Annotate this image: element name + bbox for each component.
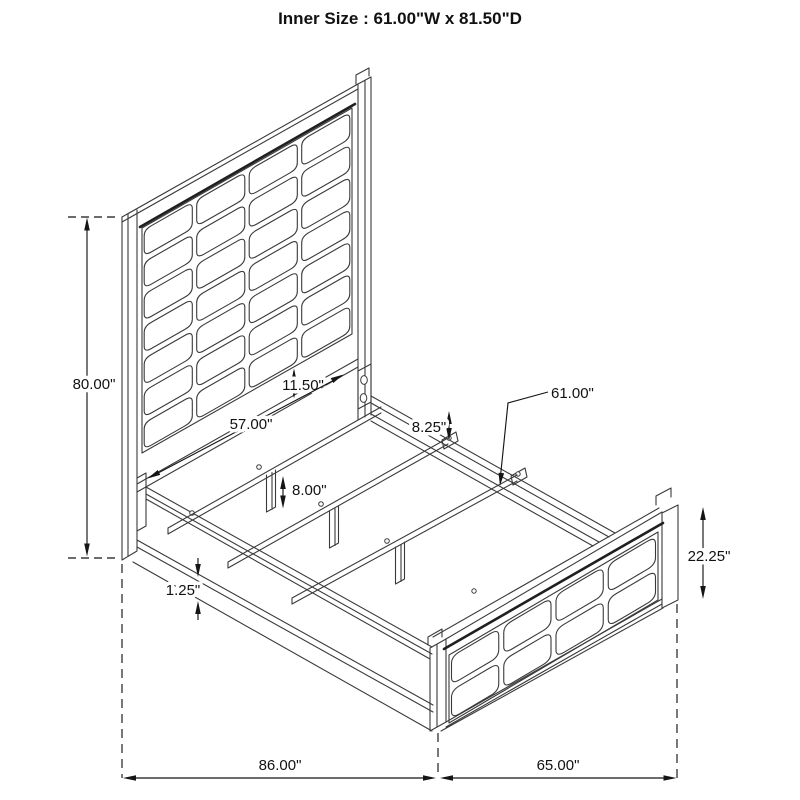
upholstery-cell [302,276,350,325]
dim-headboard-height: 80.00" [68,217,120,558]
footboard-far-post-tab [656,488,671,505]
side-rail-left [133,473,433,731]
headboard-piping [140,104,355,227]
upholstery-cell [249,306,297,355]
upholstery-cell [302,244,350,293]
upholstery-cell [144,366,192,415]
footboard-base [441,599,663,731]
upholstery-cell [197,304,245,353]
dim-rail-to-slat: 8.25" [412,411,452,441]
upholstery-cell [249,145,297,194]
diagram-title: Inner Size : 61.00"W x 81.50"D [278,9,522,28]
headboard-panel-outline [142,108,352,453]
dim-footboard-height: 22.25" [688,507,731,599]
upholstery-cell [302,308,350,357]
arrowhead [84,544,90,557]
deck-screw [472,589,476,593]
slat-screw-3 [385,539,390,544]
upholstery-cell [144,237,192,286]
footboard-far-post [662,505,678,608]
platform-side-right [371,414,599,546]
headboard-frame [122,68,371,560]
footboard [428,488,678,731]
dim-rail-lip-label: 1.25" [166,582,201,599]
dim-rail-lip: 1.25" [166,558,201,620]
slat-1 [168,407,381,534]
upholstery-cell [197,239,245,288]
dim-overall-width-label: 65.00" [537,757,580,774]
plate-hole-top [361,376,368,385]
upholstery-cell [302,179,350,228]
upholstery-cell [249,242,297,291]
slat-legs [267,470,405,584]
headboard-left-post [122,210,137,560]
upholstery-cell [144,301,192,350]
dim-overall-length-label: 86.00" [259,757,302,774]
dim-overall-width: 65.00" [440,757,677,781]
headboard-right-post [358,77,371,420]
upholstery-cell [249,177,297,226]
bed-drawing [122,68,678,731]
dim-headboard-clearance: 11.50" [282,369,324,399]
upholstery-cell [144,269,192,318]
upholstery-cell [197,207,245,256]
dim-headboard-clearance-label: 11.50" [282,377,324,394]
arrowhead [148,470,161,479]
dim-slat-span: 57.00" [148,375,344,479]
diagram-svg: 80.00" 11.50" 57.00" 8.25" 61.00" [0,0,800,800]
slat-screw-2 [319,502,324,507]
slat-leg-3 [396,542,405,584]
dim-slat-span-label: 57.00" [230,416,273,433]
upholstery-cell [197,336,245,385]
upholstery-cell [197,271,245,320]
upper-rail-left [146,487,432,659]
slat-leg-2 [330,506,339,548]
slat-2 [228,438,448,568]
upholstery-cell [249,209,297,258]
arrowhead [84,218,90,231]
dim-leg-height-label: 8.00" [292,482,327,499]
dim-footboard-height-label: 22.25" [688,548,731,565]
upholstery-cell [144,334,192,383]
upholstery-cell [144,398,192,447]
footboard-top-rail [433,508,662,639]
upholstery-cell [249,274,297,323]
dim-slat-length: 61.00" [499,385,594,486]
dim-slat-length-label: 61.00" [551,385,594,402]
slat-screw-1 [257,465,262,470]
plate-hole-bottom [360,394,367,403]
upholstery-cell [302,212,350,261]
slat-leg-1 [267,470,276,512]
bed-dimension-diagram: 80.00" 11.50" 57.00" 8.25" 61.00" [0,0,800,800]
dim-headboard-height-label: 80.00" [73,376,116,393]
footboard-near-post [430,639,446,731]
upholstery-cell [197,368,245,417]
dim-rail-to-slat-label: 8.25" [412,419,447,436]
dim-overall-length: 86.00" [123,757,436,781]
upholstery-cell [302,147,350,196]
